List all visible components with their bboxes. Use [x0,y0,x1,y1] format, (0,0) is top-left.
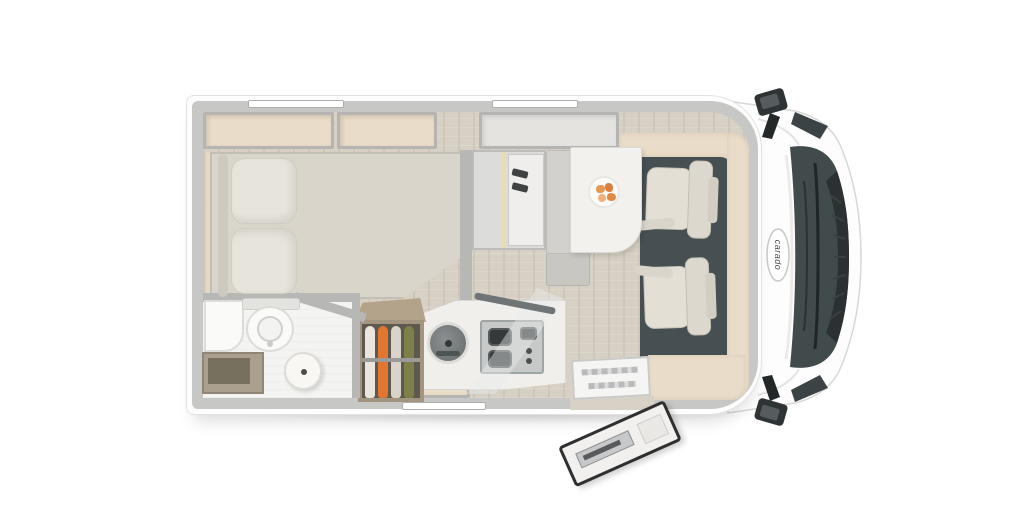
plate-of-food [588,176,620,208]
dinette-bench-base [546,252,590,286]
ambient-light-strip [502,152,505,248]
partition-wall [460,150,472,300]
overhead-cabinet-dinette [479,112,619,149]
window-kitchen-bottom [402,402,486,410]
corner-basin [204,300,244,352]
floorplan-canvas: carado [0,0,1024,512]
round-washbasin [284,352,322,390]
bathroom-wall-right [352,300,360,398]
overhead-shelf-rear-right [337,112,437,149]
bed-headboard [218,154,228,297]
hanging-clothes-white [365,326,375,398]
toilet [246,306,294,352]
cab-seat-passenger [645,159,720,239]
bathroom-bench [202,352,264,394]
window-dinette-top [492,100,578,108]
hanging-clothes-gray [391,326,401,398]
wardrobe [358,320,424,402]
window-rear-top [248,100,344,108]
pillow [231,158,297,224]
pillow [231,228,297,294]
dinette-bench-seat [546,150,572,254]
wardrobe-rail [362,358,420,362]
hanging-clothes-orange [378,326,388,398]
overhead-shelf-rear-left [203,112,334,149]
cab-seat-driver [643,257,718,337]
hanging-clothes-olive [404,326,414,398]
brand-logo-text: carado [773,240,783,271]
entry-step-well [571,356,651,400]
cab-trim-bottom [648,355,746,400]
kitchen-sink [427,322,469,364]
